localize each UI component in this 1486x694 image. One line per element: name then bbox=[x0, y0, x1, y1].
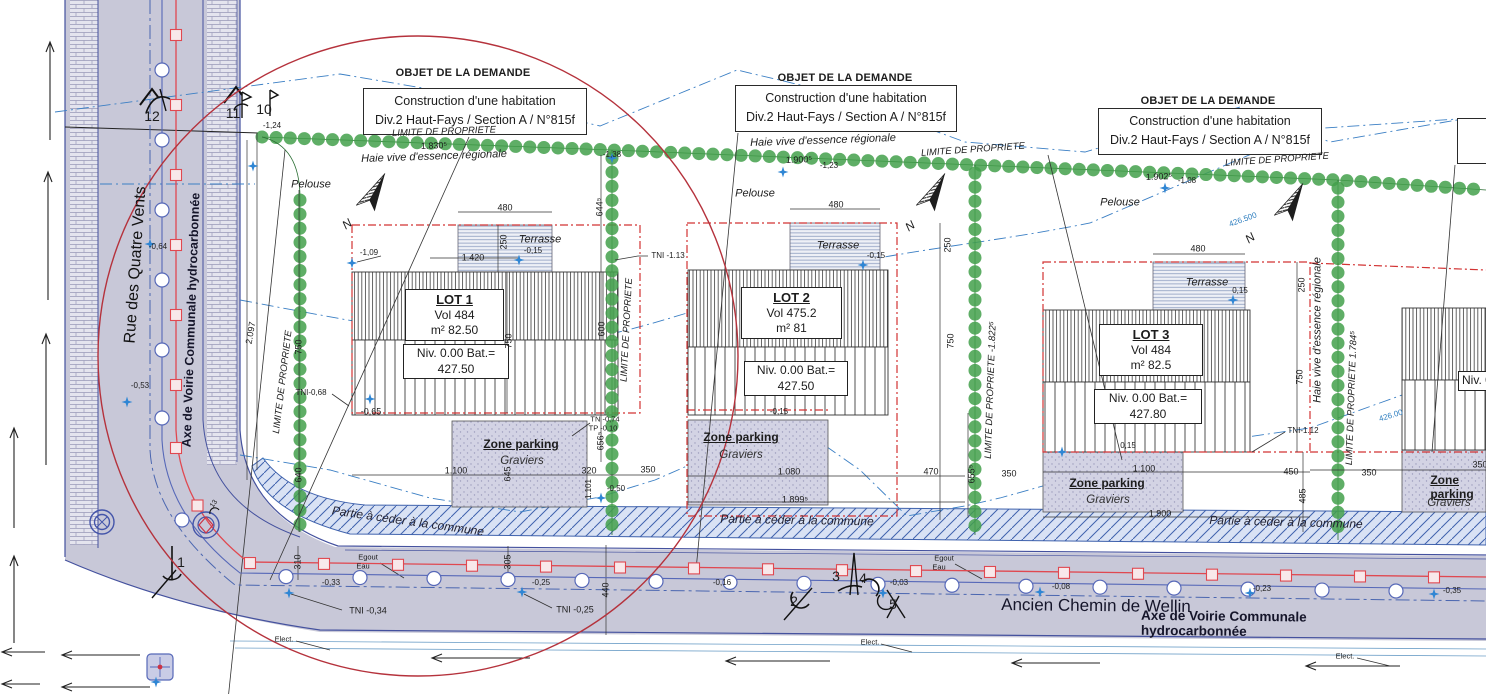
annotation-label: 655⁵ bbox=[968, 465, 977, 484]
objet-line2: Div. bbox=[1464, 141, 1486, 160]
north-arrow-icon bbox=[916, 169, 953, 215]
lot-level: Niv. 0.00 Bat.= bbox=[1098, 391, 1198, 407]
zone-parking-label-lot3: Zone parking bbox=[1069, 476, 1144, 490]
annotation-label: 10 bbox=[256, 102, 272, 116]
annotation-label: 0,15 bbox=[1232, 287, 1248, 295]
annotation-label: 5 bbox=[889, 597, 897, 611]
annotation-label: 1 bbox=[177, 555, 185, 569]
annotation-label: -0,15 bbox=[524, 247, 542, 255]
lot-area: m² 82.5 bbox=[1100, 358, 1202, 373]
annotation-label: -1,24 bbox=[263, 122, 281, 130]
annotation-label: -0,25 bbox=[532, 579, 550, 587]
objet-line2: Div.2 Haut-Fays / Section A / N°815f bbox=[1105, 131, 1315, 150]
lot-volume: Vol 475.2 bbox=[742, 306, 841, 321]
annotation-label: 11 bbox=[226, 106, 241, 120]
annotation-label: 750 bbox=[505, 333, 514, 348]
annotation-label: -0,03 bbox=[890, 579, 908, 587]
objet-title-1: OBJET DE LA DEMANDE bbox=[396, 67, 531, 79]
annotation-label: -1,08 bbox=[1178, 177, 1196, 185]
annotation-label: 450 bbox=[1283, 468, 1298, 477]
annotation-label: 0,15 bbox=[1120, 442, 1136, 450]
annotation-label: -1,09 bbox=[360, 249, 378, 257]
lot2-label-box: LOT 2 Vol 475.2 m² 81 bbox=[741, 287, 842, 339]
annotation-label: 644⁵ bbox=[596, 198, 605, 217]
street-axis-label-bottom: Axe de Voirie Communale hydrocarbonnée bbox=[1141, 608, 1371, 640]
annotation-label: 656⁵ bbox=[597, 432, 606, 451]
graviers-label-lot4: Graviers bbox=[1427, 497, 1470, 509]
annotation-label: 470 bbox=[923, 468, 938, 477]
lot-level-value: 427.80 bbox=[1098, 407, 1198, 423]
annotation-label: 2 bbox=[790, 594, 798, 608]
annotation-label: 1.420 bbox=[462, 254, 485, 263]
annotation-label: 480 bbox=[1190, 245, 1205, 254]
lot-name: LOT 2 bbox=[742, 290, 841, 306]
annotation-label: 1.080 bbox=[778, 468, 801, 477]
annotation-label: 640 bbox=[295, 467, 304, 482]
annotation-label: 750 bbox=[295, 339, 304, 354]
graviers-label-lot3: Graviers bbox=[1086, 494, 1129, 506]
electric-box-icon bbox=[147, 654, 173, 680]
annotation-label: 350 bbox=[1361, 469, 1376, 478]
annotation-label: 600 bbox=[598, 321, 607, 336]
annotation-label: 645 bbox=[504, 466, 513, 481]
annotation-label: 1.101 bbox=[585, 479, 593, 499]
annotation-label: 480 bbox=[497, 204, 512, 213]
annotation-label: 1.900⁵ bbox=[786, 155, 813, 165]
annotation-label: -0,33 bbox=[322, 579, 340, 587]
objet-title-3: OBJET DE LA DEMANDE bbox=[1141, 95, 1276, 107]
annotation-label: 350 bbox=[1001, 470, 1016, 479]
annotation-label: 750 bbox=[947, 333, 956, 348]
graviers-label-lot2: Graviers bbox=[719, 449, 762, 461]
annotation-label: 320 bbox=[581, 467, 596, 476]
annotation-label: 3 bbox=[832, 569, 840, 583]
objet-box-3: Construction d'une habitation Div.2 Haut… bbox=[1098, 108, 1322, 155]
annotation-label: 750 bbox=[1296, 369, 1305, 384]
site-plan-canvas: OBJET DE LA DEMANDE Construction d'une h… bbox=[0, 0, 1486, 694]
annotation-label: TNI-1.12 bbox=[1287, 427, 1318, 435]
graviers-label-lot1: Graviers bbox=[500, 455, 543, 467]
annotation-label: Pelouse bbox=[291, 180, 331, 191]
lot-name: LOT 3 bbox=[1100, 327, 1202, 343]
annotation-label: Terrasse bbox=[817, 241, 859, 252]
objet-line1: Construction d'une habitation bbox=[1105, 112, 1315, 131]
annotation-label: Terrasse bbox=[1186, 278, 1228, 289]
annotation-label: Pelouse bbox=[735, 189, 775, 200]
annotation-label: TN -0,74 bbox=[590, 415, 619, 423]
annotation-label: Eau bbox=[932, 563, 945, 571]
objet-line1: Construction d'une habitation bbox=[742, 89, 950, 108]
annotation-label: Haie vive d'essence régionale bbox=[1313, 257, 1324, 403]
lot-level-value: 427.50 bbox=[407, 362, 505, 378]
lot-level: Niv. 0.00 Bat.= bbox=[748, 363, 844, 379]
zone-parking-label-lot1: Zone parking bbox=[483, 437, 558, 451]
annotation-label: TNI -0,25 bbox=[556, 606, 594, 615]
zone-parking-label-lot2: Zone parking bbox=[703, 430, 778, 444]
lot-volume: Vol 484 bbox=[406, 308, 503, 323]
lot-volume: Vol 484 bbox=[1100, 343, 1202, 358]
annotation-label: 480 bbox=[828, 201, 843, 210]
annotation-label: -0,23 bbox=[1253, 585, 1271, 593]
objet-line1: Construction d'une habitation bbox=[370, 92, 580, 111]
annotation-label: -0,16 bbox=[713, 579, 731, 587]
annotation-label: Eau bbox=[356, 562, 369, 570]
lot4-level-box-partial: Niv. 0.00 bbox=[1458, 371, 1486, 391]
annotation-label: 485 bbox=[1299, 488, 1308, 503]
objet-line2: Div.2 Haut-Fays / Section A / N°815f bbox=[742, 108, 950, 127]
annotation-label: TP -0,10 bbox=[589, 424, 618, 432]
lot1-level-box: Niv. 0.00 Bat.= 427.50 bbox=[403, 344, 509, 379]
annotation-label: 1.899⁵ bbox=[782, 496, 808, 505]
annotation-label: -0,64 bbox=[149, 243, 167, 251]
annotation-label: 305 bbox=[504, 554, 513, 569]
annotation-label: 350 bbox=[1472, 461, 1486, 470]
annotation-label: 250 bbox=[944, 237, 953, 252]
lot-level-value: 427.50 bbox=[748, 379, 844, 395]
annotation-label: 12 bbox=[144, 109, 160, 123]
annotation-label: -0.50 bbox=[607, 485, 625, 493]
north-arrow-icon bbox=[1274, 179, 1311, 225]
annotation-label: 250 bbox=[500, 234, 509, 249]
lot2-level-box: Niv. 0.00 Bat.= 427.50 bbox=[744, 361, 848, 396]
annotation-label: Elect. bbox=[275, 635, 294, 643]
lot-name: LOT 1 bbox=[406, 292, 503, 308]
annotation-label: 250 bbox=[1298, 277, 1307, 292]
annotation-label: Egout bbox=[934, 554, 954, 562]
annotation-label: Egout bbox=[358, 553, 378, 561]
lot-level: Niv. 0.00 Bat.= bbox=[407, 346, 505, 362]
annotation-label: -1,38 bbox=[603, 151, 621, 159]
objet-title-2: OBJET DE LA DEMANDE bbox=[778, 72, 913, 84]
annotation-label: 1.902⁵ bbox=[1146, 172, 1173, 182]
annotation-label: 1.100 bbox=[445, 467, 468, 476]
annotation-label: -0,15 bbox=[867, 252, 885, 260]
annotation-label: -0,35 bbox=[1443, 587, 1461, 595]
annotation-label: 310 bbox=[294, 554, 303, 569]
building-lot4 bbox=[1402, 308, 1486, 380]
cession-label-2: Partie à céder à la commune bbox=[720, 512, 874, 529]
annotation-label: -0,08 bbox=[1052, 583, 1070, 591]
north-arrow-icon bbox=[356, 169, 393, 215]
annotation-label: 1.900 bbox=[1149, 510, 1172, 519]
objet-line1: C bbox=[1464, 122, 1486, 141]
lot1-label-box: LOT 1 Vol 484 m² 82.50 bbox=[405, 289, 504, 341]
annotation-label: 1.100 bbox=[1133, 465, 1156, 474]
objet-box-2: Construction d'une habitation Div.2 Haut… bbox=[735, 85, 957, 132]
annotation-label: 440 bbox=[602, 582, 611, 597]
annotation-label: TNI-0,68 bbox=[295, 389, 326, 397]
objet-box-4-partial: C Div. bbox=[1457, 118, 1486, 164]
annotation-label: -0,15 bbox=[770, 408, 788, 416]
annotation-label: -0,65 bbox=[361, 408, 382, 417]
annotation-label: 350 bbox=[640, 466, 655, 475]
lot-area: m² 81 bbox=[742, 321, 841, 336]
lot-level: Niv. 0.00 bbox=[1462, 373, 1486, 389]
annotation-label: TNI -0,34 bbox=[349, 607, 387, 616]
annotation-label: Elect. bbox=[1336, 652, 1355, 660]
annotation-label: TNI -1.13 bbox=[651, 252, 684, 260]
annotation-label: 4 bbox=[859, 571, 867, 585]
lot3-label-box: LOT 3 Vol 484 m² 82.5 bbox=[1099, 324, 1203, 376]
annotation-label: -1,23 bbox=[820, 162, 838, 170]
annotation-label: Elect. bbox=[861, 638, 880, 646]
annotation-label: Terrasse bbox=[519, 235, 561, 246]
lot3-level-box: Niv. 0.00 Bat.= 427.80 bbox=[1094, 389, 1202, 424]
lot-area: m² 82.50 bbox=[406, 323, 503, 338]
annotation-label: Pelouse bbox=[1100, 198, 1140, 209]
annotation-label: -0,53 bbox=[131, 382, 149, 390]
